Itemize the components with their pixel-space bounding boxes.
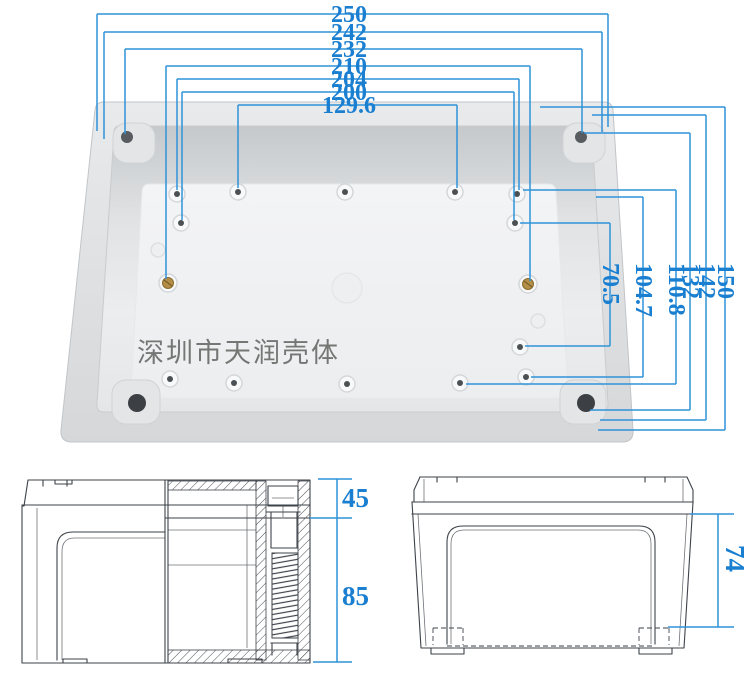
enclosure-dimension-drawing: 深圳市天润壳体 250 242 232 210 204 200 12 — [0, 0, 750, 694]
center-knockout — [332, 273, 362, 303]
drawing-canvas: 深圳市天润壳体 250 242 232 210 204 200 12 — [0, 0, 750, 694]
front-view: 74 — [412, 477, 750, 654]
corner-boss-top-right — [563, 123, 605, 163]
dim-lid-height-and-base-height: 45 85 — [310, 479, 369, 662]
svg-text:104.7: 104.7 — [630, 263, 656, 317]
svg-text:85: 85 — [342, 581, 369, 611]
blind-boss — [151, 243, 165, 257]
section-hatch-wall-left — [256, 481, 266, 660]
svg-text:129.6: 129.6 — [322, 93, 376, 119]
svg-text:74: 74 — [720, 545, 750, 572]
dim-inner-height: 74 — [668, 514, 750, 627]
svg-text:45: 45 — [342, 483, 369, 513]
svg-text:70.5: 70.5 — [597, 263, 623, 305]
section-screw-thread — [272, 553, 298, 638]
corner-boss-top-left — [113, 123, 155, 163]
section-view: 45 85 — [22, 479, 369, 663]
plan-view-photo: 深圳市天润壳体 — [61, 102, 633, 442]
section-hatch-bottom — [168, 650, 310, 663]
watermark-text: 深圳市天润壳体 — [137, 338, 340, 368]
corner-screw-hole — [121, 131, 133, 143]
blind-boss — [531, 314, 545, 328]
section-hatch-wall-right — [298, 481, 310, 660]
section-hatch-lid — [168, 481, 256, 490]
svg-text:110.8: 110.8 — [663, 263, 689, 316]
corner-screw-hole — [128, 394, 146, 412]
